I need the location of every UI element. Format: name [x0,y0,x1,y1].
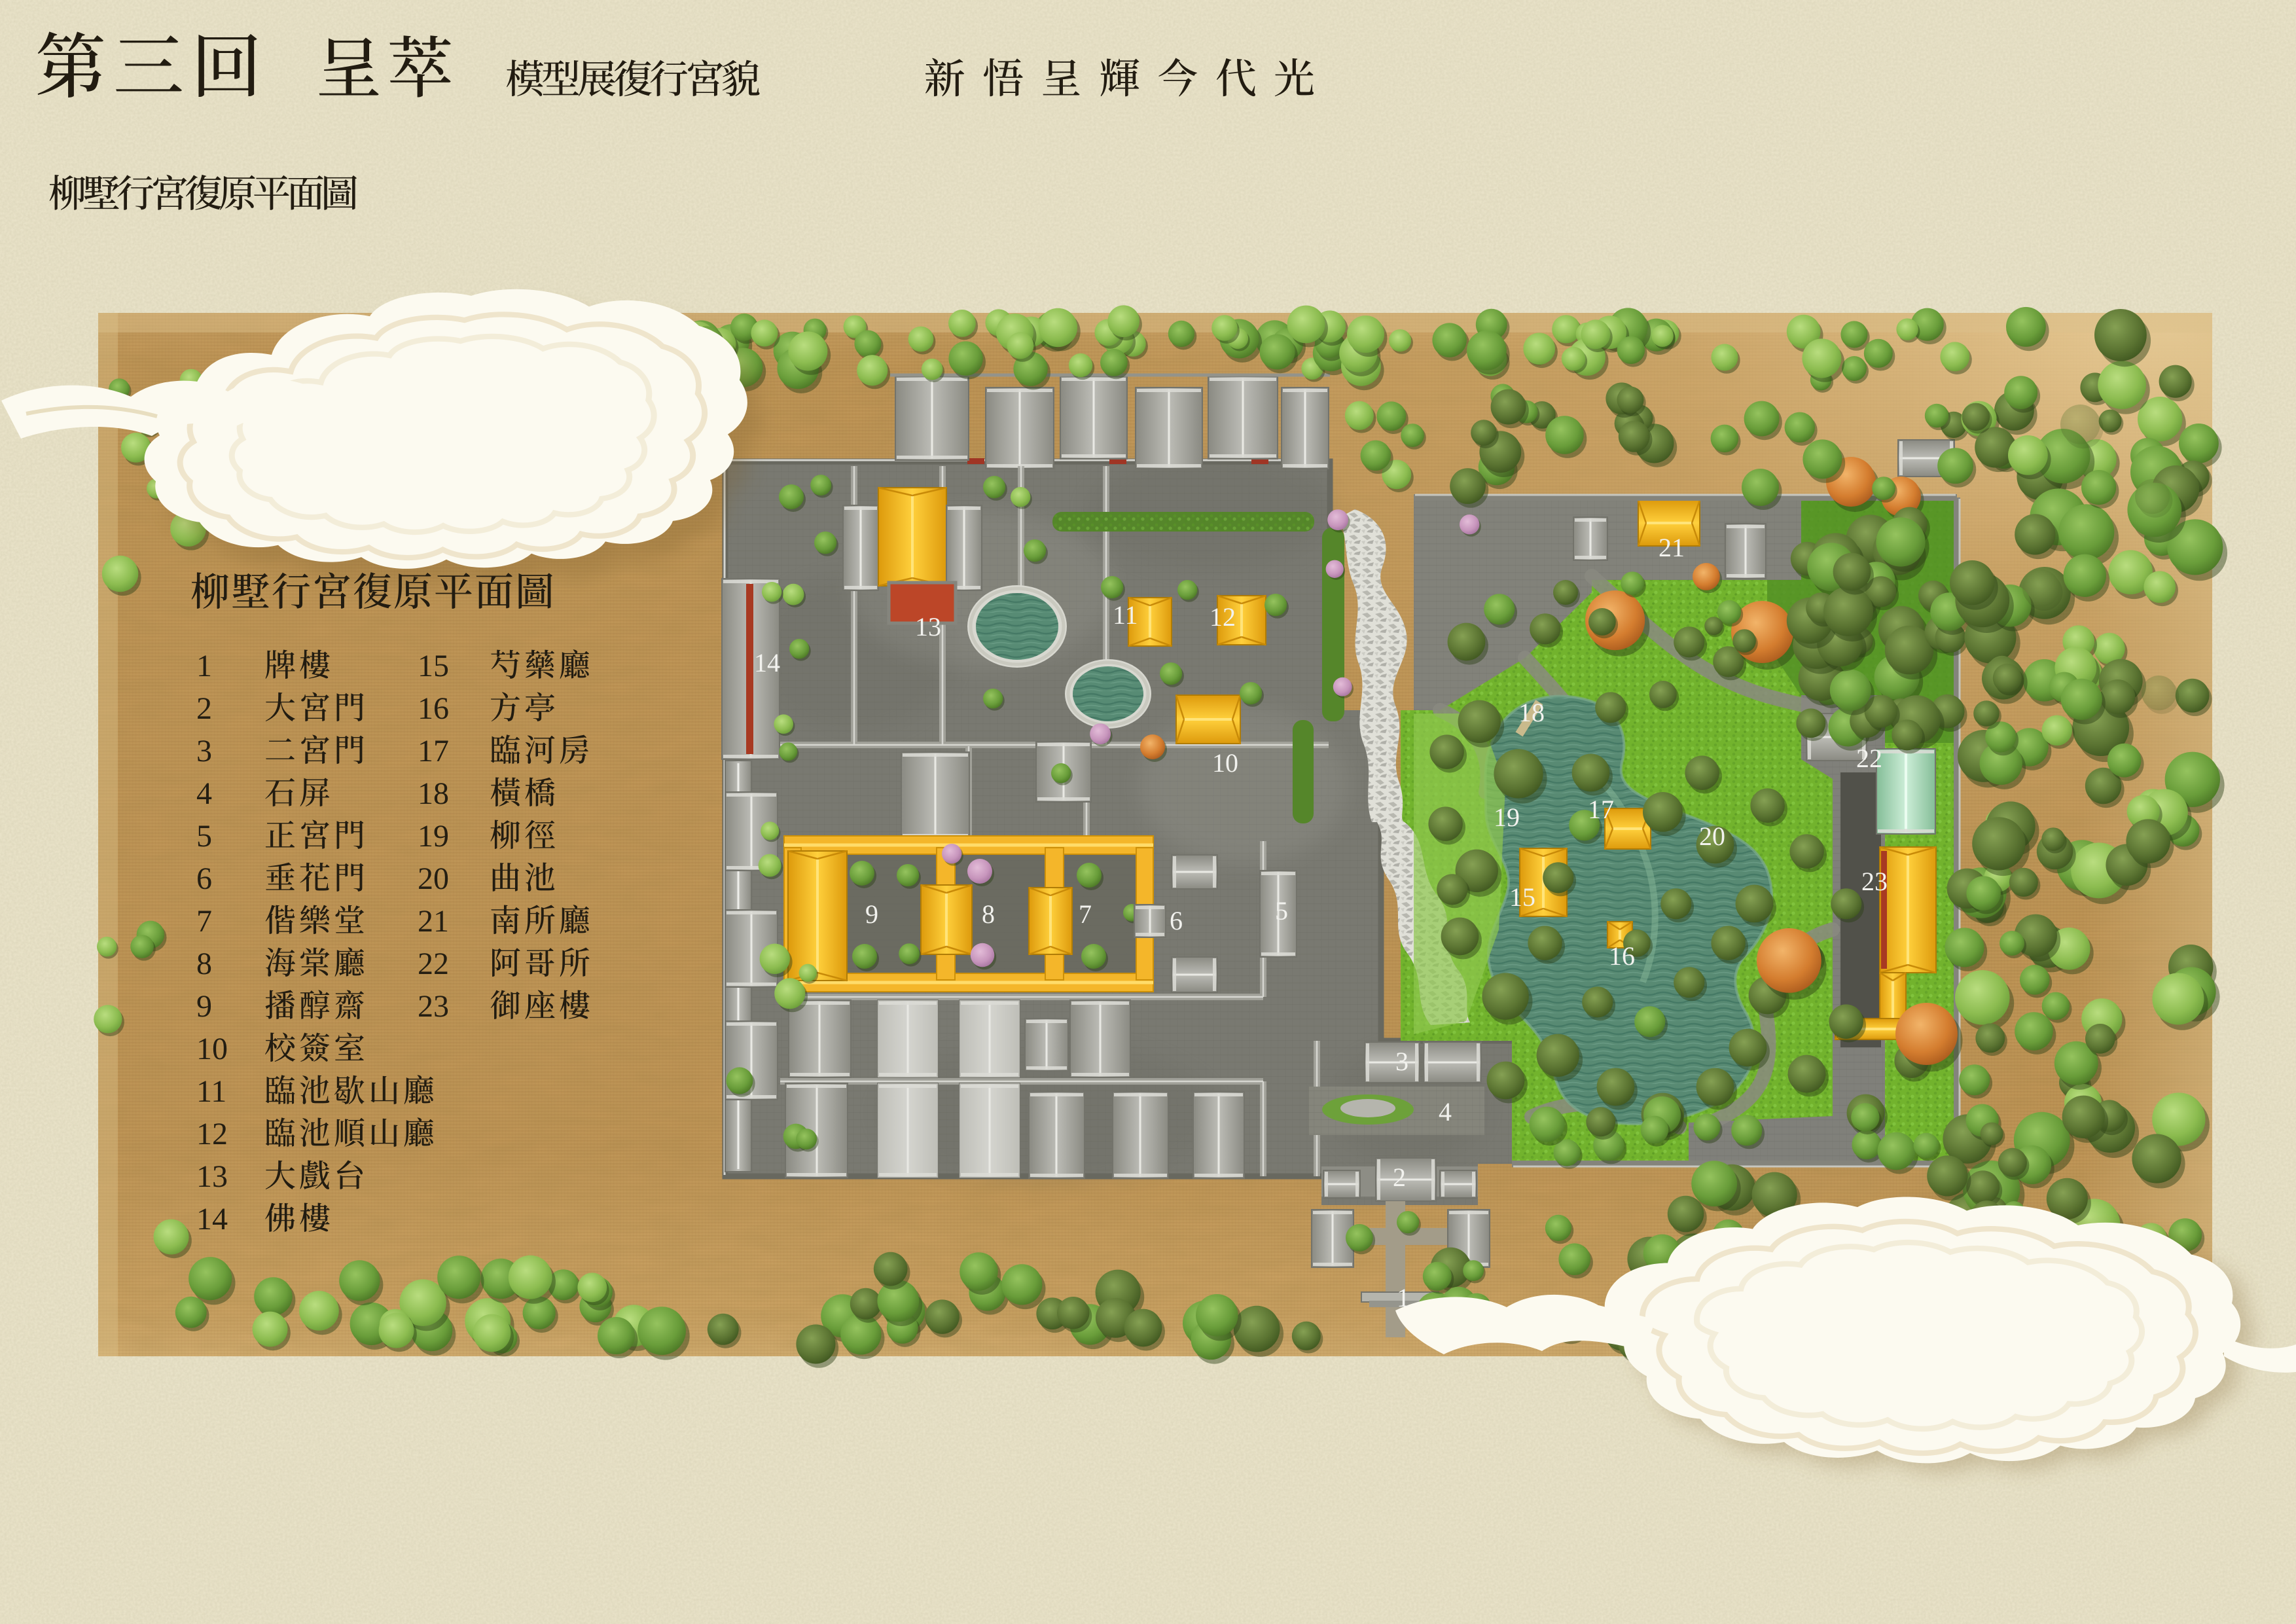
svg-text:3: 3 [196,734,212,768]
svg-text:8: 8 [982,899,995,929]
svg-text:11: 11 [196,1074,226,1109]
svg-text:17: 17 [418,734,449,768]
svg-text:6: 6 [1170,906,1183,935]
svg-text:12: 12 [1210,602,1236,632]
svg-text:2: 2 [196,691,212,726]
svg-text:19: 19 [418,819,449,854]
svg-text:5: 5 [1275,896,1288,926]
svg-text:11: 11 [1113,600,1138,630]
svg-text:16: 16 [418,691,449,726]
svg-text:14: 14 [196,1202,228,1236]
svg-text:4: 4 [196,776,212,811]
svg-text:9: 9 [865,899,878,929]
svg-text:10: 10 [1212,748,1238,778]
svg-text:7: 7 [1079,899,1092,929]
svg-text:15: 15 [418,649,449,683]
svg-text:19: 19 [1494,803,1520,832]
svg-text:1: 1 [1397,1283,1410,1312]
svg-text:10: 10 [196,1032,228,1066]
svg-text:4: 4 [1439,1097,1452,1127]
svg-text:22: 22 [418,947,449,981]
svg-text:5: 5 [196,819,212,854]
svg-text:21: 21 [418,904,449,939]
svg-text:1: 1 [196,649,212,683]
svg-text:2: 2 [1393,1163,1406,1192]
svg-text:9: 9 [196,989,212,1024]
svg-text:21: 21 [1659,533,1685,562]
svg-text:16: 16 [1609,941,1635,971]
svg-text:12: 12 [196,1117,228,1151]
svg-text:13: 13 [196,1159,228,1194]
svg-text:6: 6 [196,861,212,896]
svg-text:20: 20 [1699,821,1725,851]
svg-text:23: 23 [1861,867,1888,896]
svg-text:7: 7 [196,904,212,939]
svg-text:14: 14 [754,648,780,677]
svg-text:13: 13 [915,612,941,641]
svg-text:18: 18 [1518,698,1545,727]
svg-text:22: 22 [1856,744,1882,773]
svg-text:15: 15 [1509,882,1535,912]
svg-text:3: 3 [1395,1047,1408,1076]
svg-text:20: 20 [418,861,449,896]
svg-text:8: 8 [196,947,212,981]
svg-text:18: 18 [418,776,449,811]
svg-text:23: 23 [418,989,449,1024]
svg-text:17: 17 [1588,795,1614,824]
